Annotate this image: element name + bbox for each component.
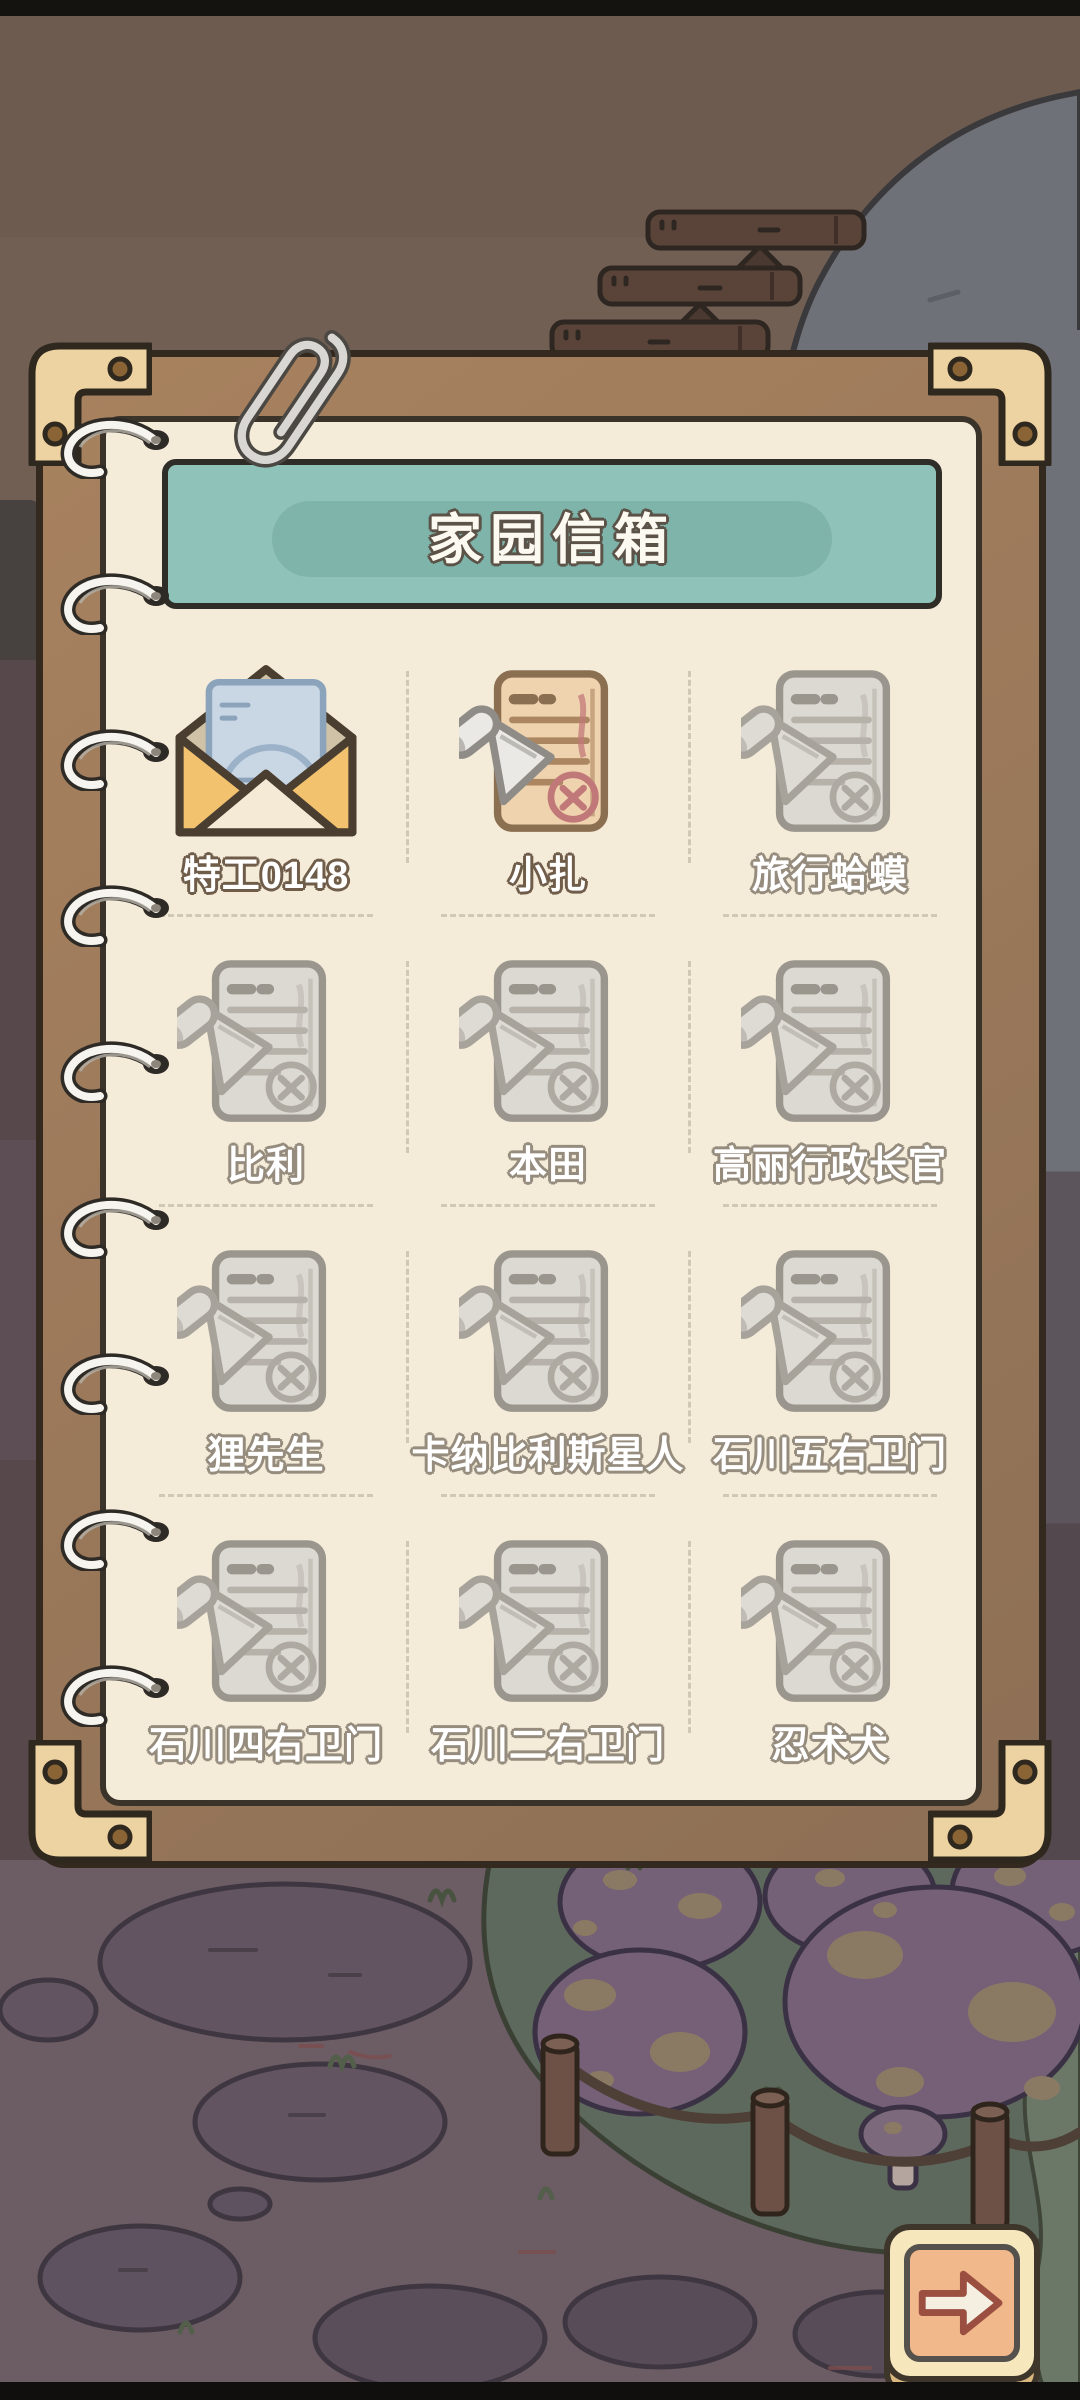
binder-ring: [52, 1663, 180, 1727]
mail-item-5[interactable]: 高丽行政长官: [689, 915, 971, 1205]
binder-ring: [52, 571, 180, 635]
binder-ring: [52, 1195, 180, 1259]
navigation-bar: [0, 2382, 1080, 2400]
binder-ring: [52, 1351, 180, 1415]
binder-ring: [52, 727, 180, 791]
read-letter-icon: [741, 949, 919, 1142]
read-letter-icon: [459, 949, 637, 1142]
read-letter-icon: [177, 949, 355, 1142]
binder-ring: [52, 1039, 180, 1103]
mail-item-label: 石川五右卫门: [713, 1424, 947, 1479]
open-envelope-icon: [160, 656, 372, 852]
binder-ring: [52, 883, 180, 947]
corner-bracket: [928, 1740, 1056, 1868]
mail-item-label: 狸先生: [207, 1424, 324, 1479]
mail-grid: 特工0148 小扎 旅行蛤蟆 比利 本田 高丽行政长官: [125, 625, 971, 1785]
background-left-purple: [0, 1140, 40, 1460]
binder-ring: [52, 415, 180, 479]
read-letter-icon: [459, 1239, 637, 1432]
read-letter-icon: [177, 1529, 355, 1722]
corner-bracket: [24, 1740, 152, 1868]
mail-item-4[interactable]: 本田: [407, 915, 689, 1205]
mailbox-panel: 家园信箱 特工0148 小扎 旅行蛤蟆 比利 本田: [36, 350, 1046, 1868]
mail-item-label: 特工0148: [183, 844, 350, 899]
read-letter-icon: [459, 1529, 637, 1722]
binder-ring: [52, 1507, 180, 1571]
mail-item-1[interactable]: 小扎: [407, 625, 689, 915]
next-button-inner: [904, 2244, 1020, 2362]
read-letter-icon: [177, 1239, 355, 1432]
status-bar: [0, 0, 1080, 16]
mail-item-label: 比利: [227, 1134, 305, 1189]
mail-item-label: 石川四右卫门: [149, 1714, 383, 1769]
read-letter-icon: [741, 1529, 919, 1722]
mail-item-label: 小扎: [509, 844, 587, 899]
page-title: 家园信箱: [428, 495, 676, 574]
mail-item-2[interactable]: 旅行蛤蟆: [689, 625, 971, 915]
read-letter-icon: [741, 659, 919, 852]
mail-item-10[interactable]: 石川二右卫门: [407, 1495, 689, 1785]
corner-bracket: [928, 338, 1056, 466]
mail-item-label: 石川二右卫门: [431, 1714, 665, 1769]
background-right: [1040, 330, 1080, 1860]
mail-item-label: 忍术犬: [771, 1714, 888, 1769]
arrow-right-icon: [914, 2261, 1010, 2345]
mail-item-label: 旅行蛤蟆: [752, 844, 908, 899]
mail-item-8[interactable]: 石川五右卫门: [689, 1205, 971, 1495]
mail-item-7[interactable]: 卡纳比利斯星人: [407, 1205, 689, 1495]
next-page-button[interactable]: [884, 2224, 1040, 2382]
mail-item-label: 高丽行政长官: [713, 1134, 947, 1189]
game-screen: 家园信箱 特工0148 小扎 旅行蛤蟆 比利 本田: [0, 0, 1080, 2400]
read-letter-icon: [741, 1239, 919, 1432]
mail-item-label: 卡纳比利斯星人: [411, 1424, 684, 1479]
mail-item-label: 本田: [509, 1134, 587, 1189]
unread-letter-icon: [459, 659, 637, 852]
